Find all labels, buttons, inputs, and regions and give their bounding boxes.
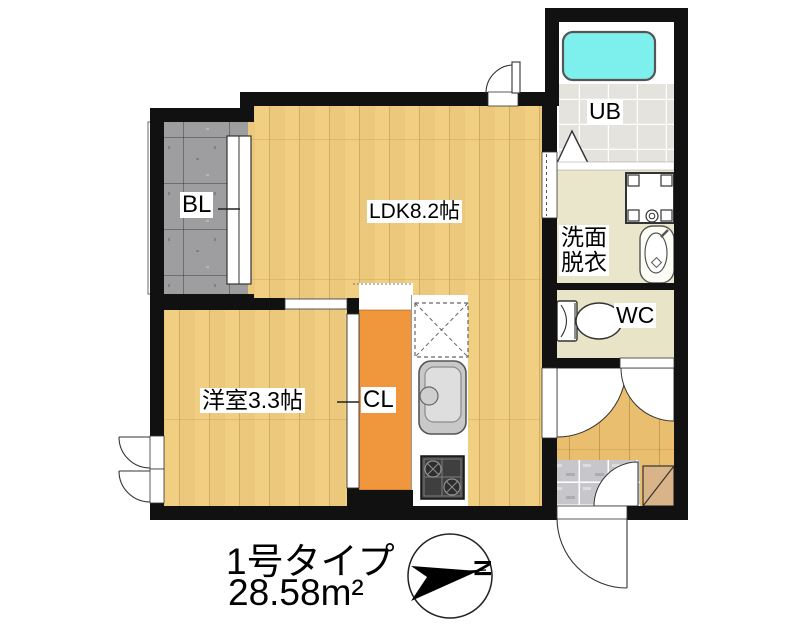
- entrance-door-arc: [557, 518, 627, 588]
- hall-door-leaf: [542, 368, 557, 438]
- floor-plan-canvas: BL LDK8.2帖 UB 洗面 脱衣 WC 洋室3.3帖 CL 1号タイプ 2…: [0, 0, 800, 640]
- label-closet: CL: [361, 387, 396, 413]
- closet-door: [347, 314, 359, 488]
- label-bedroom: 洋室3.3帖: [200, 388, 305, 413]
- top-door-arc: [486, 65, 512, 93]
- washing-machine-pan: [626, 173, 674, 223]
- washroom-sliding-door: [542, 152, 557, 218]
- vanity-sink: [640, 226, 674, 283]
- bedroom-doorway-opening: [285, 299, 347, 309]
- gas-stove: [421, 456, 464, 499]
- toilet: [557, 301, 622, 341]
- floor-area-value: 28.58m²: [228, 572, 364, 614]
- shoe-cabinet: [643, 466, 674, 506]
- top-door-opening: [488, 92, 518, 106]
- bathtub: [563, 32, 655, 80]
- entrance-opening: [557, 506, 627, 519]
- window2-arc: [119, 471, 150, 502]
- label-unit-bath: UB: [587, 99, 623, 124]
- top-door-leaf: [512, 62, 520, 93]
- bedroom-window-opening-2: [150, 469, 164, 503]
- compass-north-label: N: [468, 559, 496, 576]
- label-balcony: BL: [180, 192, 213, 218]
- window1-arc: [119, 437, 150, 468]
- floor-plan-drawing: [0, 0, 800, 640]
- kitchen-sink: [419, 361, 466, 434]
- label-ldk: LDK8.2帖: [367, 200, 462, 223]
- closet-top-strip: [359, 283, 413, 310]
- balcony-window: [227, 136, 251, 284]
- bath-door-opening: [557, 162, 674, 170]
- label-washroom-line1: 洗面: [561, 225, 607, 250]
- bedroom-window-opening-1: [150, 436, 164, 469]
- wc-door-leaf: [620, 358, 674, 368]
- label-washroom-line2: 脱衣: [561, 250, 607, 275]
- label-washroom: 洗面 脱衣: [559, 225, 609, 276]
- refrigerator-space-icon: [415, 303, 468, 357]
- label-toilet: WC: [614, 303, 656, 328]
